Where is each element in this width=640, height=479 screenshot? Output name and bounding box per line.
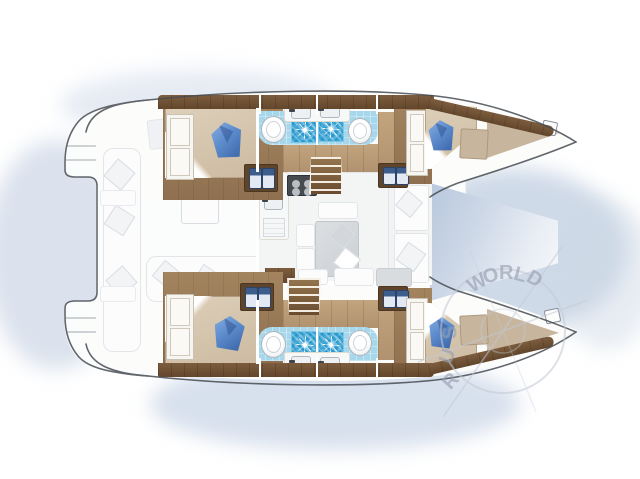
companionway-stairs-port bbox=[309, 157, 343, 194]
watermark-letter: S bbox=[439, 325, 463, 340]
cabin-bathroom-wall bbox=[256, 300, 259, 364]
wardrobe-aft-port bbox=[166, 114, 194, 180]
bow-square-cushion-starboard bbox=[459, 314, 489, 345]
wardrobe-door bbox=[410, 144, 424, 172]
wardrobe-door bbox=[170, 148, 190, 176]
wardrobe-door bbox=[410, 114, 424, 142]
bow-square-cushion-port bbox=[459, 128, 489, 159]
side-deck-port bbox=[158, 95, 434, 109]
toilet-port-fwd bbox=[348, 118, 372, 144]
wardrobe-fwd-starboard bbox=[406, 298, 428, 364]
bulkhead-tick bbox=[376, 94, 378, 114]
shower-jet-icon bbox=[323, 337, 340, 354]
bulkhead-tick bbox=[259, 358, 261, 378]
wardrobe-door bbox=[170, 298, 190, 326]
wardrobe-aft-starboard bbox=[166, 294, 194, 360]
companionway-stairs-starboard bbox=[287, 278, 321, 315]
dining-seat bbox=[296, 248, 315, 271]
toilet-port-aft bbox=[261, 116, 286, 143]
side-deck-starboard bbox=[158, 363, 434, 377]
salon-couch-gray bbox=[376, 268, 412, 287]
shower-jet-icon bbox=[297, 336, 314, 353]
step-tread bbox=[383, 167, 396, 185]
shower-jet-icon bbox=[323, 121, 340, 138]
hull-steps-aft-port bbox=[244, 164, 278, 192]
cabin-bathroom-wall bbox=[256, 108, 259, 172]
wardrobe-door bbox=[410, 302, 424, 330]
step-tread bbox=[262, 168, 275, 189]
transom-locker bbox=[100, 286, 136, 302]
dining-seat bbox=[296, 224, 315, 247]
hull-steps-fwd-starboard bbox=[378, 286, 408, 311]
dining-bench bbox=[318, 202, 358, 219]
bulkhead-tick bbox=[376, 358, 378, 378]
bulkhead-tick bbox=[316, 94, 318, 114]
wardrobe-door bbox=[170, 118, 190, 146]
toilet-starboard-fwd bbox=[348, 330, 372, 356]
hull-steps-fwd-port bbox=[378, 163, 408, 188]
bulkhead-tick bbox=[259, 94, 261, 114]
wardrobe-door bbox=[170, 328, 190, 356]
catamaran-floorplan: W O R L D S U R bbox=[0, 0, 640, 479]
wardrobe-door bbox=[410, 332, 424, 360]
step-tread bbox=[383, 290, 396, 308]
salon-sofa-aft bbox=[334, 268, 374, 286]
shower-jet-icon bbox=[297, 121, 314, 138]
galley-drawers bbox=[263, 218, 285, 237]
bulkhead-tick bbox=[316, 358, 318, 378]
toilet-starboard-aft bbox=[261, 331, 286, 358]
wardrobe-fwd-port bbox=[406, 110, 428, 176]
transom-locker bbox=[100, 190, 136, 206]
step-tread bbox=[258, 287, 271, 308]
